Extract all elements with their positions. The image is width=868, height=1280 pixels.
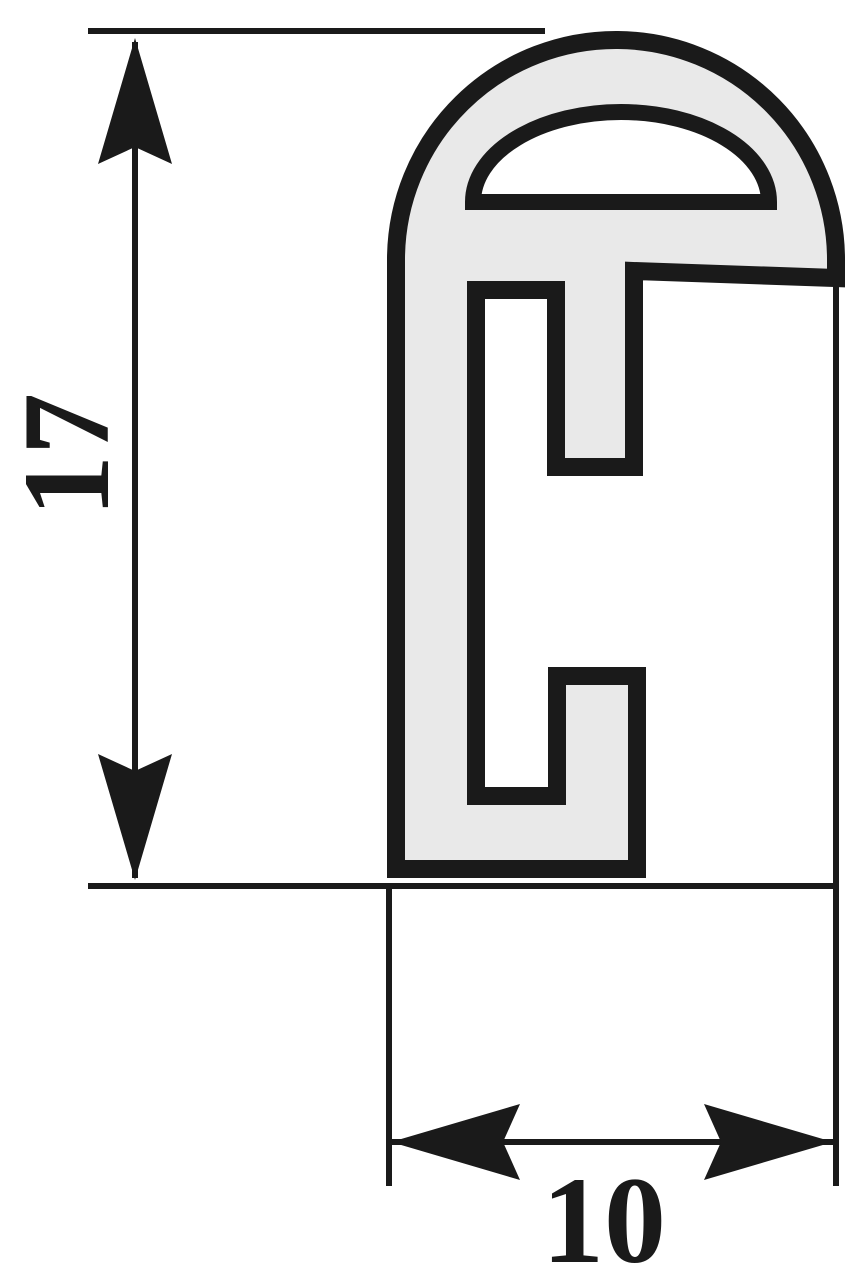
height-dimension-label: 17 <box>0 393 135 517</box>
height-arrow-up-icon <box>98 38 172 164</box>
width-arrow-left-icon <box>391 1104 520 1180</box>
width-arrow-right-icon <box>704 1104 833 1180</box>
drawing-canvas: 17 10 <box>0 0 868 1280</box>
technical-drawing: 17 10 <box>0 0 868 1280</box>
width-dimension-label: 10 <box>542 1152 666 1280</box>
height-arrow-down-icon <box>98 754 172 880</box>
